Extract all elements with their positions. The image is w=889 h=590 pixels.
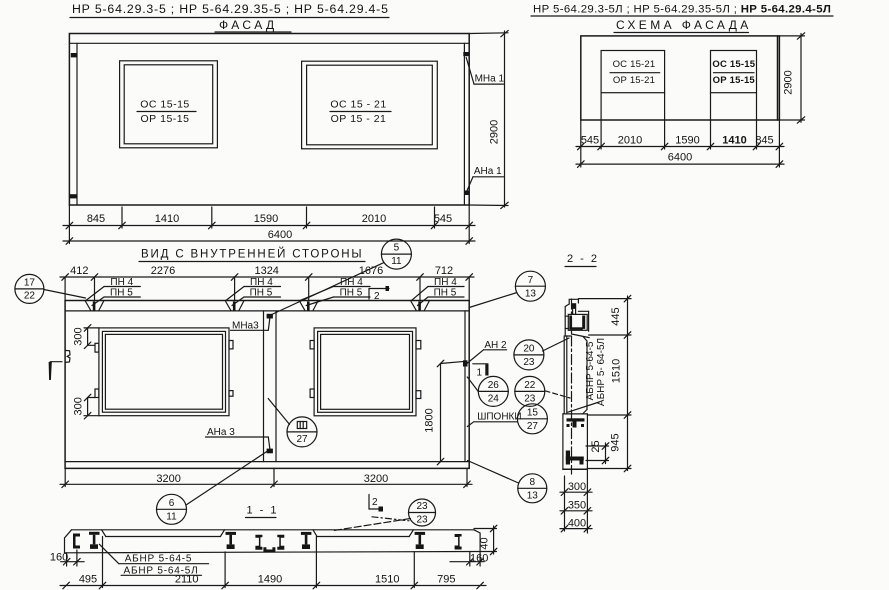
svg-text:845: 845 <box>87 213 105 225</box>
svg-text:1510: 1510 <box>611 359 623 383</box>
svg-text:1590: 1590 <box>254 213 278 225</box>
svg-text:АНа 1: АНа 1 <box>474 166 502 177</box>
svg-text:11: 11 <box>391 256 402 267</box>
svg-text:15: 15 <box>527 407 539 418</box>
svg-text:795: 795 <box>437 574 455 586</box>
svg-text:23: 23 <box>524 394 536 405</box>
svg-text:40: 40 <box>479 537 491 549</box>
svg-text:945: 945 <box>610 433 622 451</box>
svg-text:НР 5-64.29.3-5Л ; НР 5-64.29.3: НР 5-64.29.3-5Л ; НР 5-64.29.35-5Л ; НР … <box>533 4 831 16</box>
svg-text:ОС 15 - 21: ОС 15 - 21 <box>330 99 386 111</box>
svg-text:1 - 1: 1 - 1 <box>247 505 279 517</box>
svg-text:6: 6 <box>169 498 175 509</box>
svg-text:2010: 2010 <box>618 135 642 147</box>
svg-text:ФАСАД: ФАСАД <box>219 18 278 32</box>
svg-text:АНа 3: АНа 3 <box>207 427 235 438</box>
svg-text:5: 5 <box>394 243 400 254</box>
svg-text:545: 545 <box>581 135 599 147</box>
svg-text:412: 412 <box>70 265 88 277</box>
svg-text:ВИД С ВНУТРЕННЕЙ СТОРОНЫ: ВИД С ВНУТРЕННЕЙ СТОРОНЫ <box>141 248 363 261</box>
svg-text:АБНР 5-64-5: АБНР 5-64-5 <box>585 341 596 400</box>
svg-text:1410: 1410 <box>155 213 179 225</box>
svg-text:22: 22 <box>524 380 536 391</box>
svg-text:7: 7 <box>528 275 534 286</box>
svg-text:545: 545 <box>434 213 452 225</box>
svg-text:6400: 6400 <box>668 152 692 164</box>
svg-text:2110: 2110 <box>175 574 199 586</box>
svg-text:350: 350 <box>568 500 586 512</box>
svg-text:13: 13 <box>525 289 537 300</box>
svg-text:20: 20 <box>523 344 535 355</box>
svg-text:ОР 15 - 21: ОР 15 - 21 <box>331 113 387 125</box>
svg-text:ШПОНКИ: ШПОНКИ <box>477 412 521 423</box>
svg-text:712: 712 <box>435 265 453 277</box>
svg-text:25: 25 <box>590 440 602 452</box>
svg-text:300: 300 <box>568 481 586 493</box>
svg-text:24: 24 <box>488 394 500 405</box>
svg-text:23: 23 <box>416 515 428 526</box>
svg-text:22: 22 <box>24 291 36 302</box>
svg-text:ОС 15-15: ОС 15-15 <box>712 59 755 70</box>
svg-text:НР 5-64.29.3-5 ; НР 5-64.29.3: НР 5-64.29.3-5 ; НР 5-64.29.35-5 ; НР 5-… <box>72 2 389 16</box>
svg-text:23: 23 <box>523 357 535 368</box>
svg-text:8: 8 <box>530 477 536 488</box>
svg-text:400: 400 <box>568 517 586 529</box>
svg-text:1590: 1590 <box>675 135 699 147</box>
svg-text:1324: 1324 <box>254 265 278 277</box>
svg-text:17: 17 <box>24 278 36 289</box>
svg-text:2900: 2900 <box>783 70 795 94</box>
svg-text:3200: 3200 <box>364 473 388 485</box>
svg-text:2 - 2: 2 - 2 <box>567 253 599 265</box>
svg-text:ОС 15-15: ОС 15-15 <box>140 99 190 111</box>
svg-text:27: 27 <box>296 434 308 445</box>
svg-text:ОР 15-15: ОР 15-15 <box>141 113 190 125</box>
svg-text:2010: 2010 <box>362 213 386 225</box>
svg-text:1490: 1490 <box>258 574 282 586</box>
svg-text:АБНР 5- 64-5Л: АБНР 5- 64-5Л <box>596 338 607 406</box>
svg-text:2: 2 <box>372 497 378 508</box>
svg-text:МНа 1: МНа 1 <box>475 74 505 85</box>
svg-text:2900: 2900 <box>489 120 501 144</box>
svg-text:СХЕМА ФАСАДА: СХЕМА ФАСАДА <box>616 18 752 32</box>
svg-text:3200: 3200 <box>156 473 180 485</box>
svg-text:ОР 15-15: ОР 15-15 <box>713 75 756 86</box>
svg-text:6400: 6400 <box>268 229 292 241</box>
svg-text:ОР 15-21: ОР 15-21 <box>613 75 655 86</box>
svg-text:26: 26 <box>488 380 500 391</box>
svg-text:495: 495 <box>79 574 97 586</box>
svg-text:845: 845 <box>755 135 773 147</box>
svg-text:13: 13 <box>527 491 539 502</box>
svg-text:23: 23 <box>416 501 428 512</box>
svg-text:445: 445 <box>610 307 622 325</box>
svg-text:ОС 15-21: ОС 15-21 <box>613 59 656 70</box>
svg-text:2276: 2276 <box>151 265 175 277</box>
svg-text:1410: 1410 <box>722 135 746 147</box>
svg-text:1800: 1800 <box>424 408 436 432</box>
svg-text:2: 2 <box>374 291 380 302</box>
svg-text:11: 11 <box>166 512 177 523</box>
svg-text:300: 300 <box>73 327 85 345</box>
svg-text:АБНР 5-64-5: АБНР 5-64-5 <box>125 554 193 565</box>
svg-text:1510: 1510 <box>375 574 399 586</box>
svg-text:300: 300 <box>73 397 85 415</box>
svg-text:1676: 1676 <box>359 265 383 277</box>
svg-text:1: 1 <box>477 368 483 379</box>
svg-text:27: 27 <box>527 421 539 432</box>
